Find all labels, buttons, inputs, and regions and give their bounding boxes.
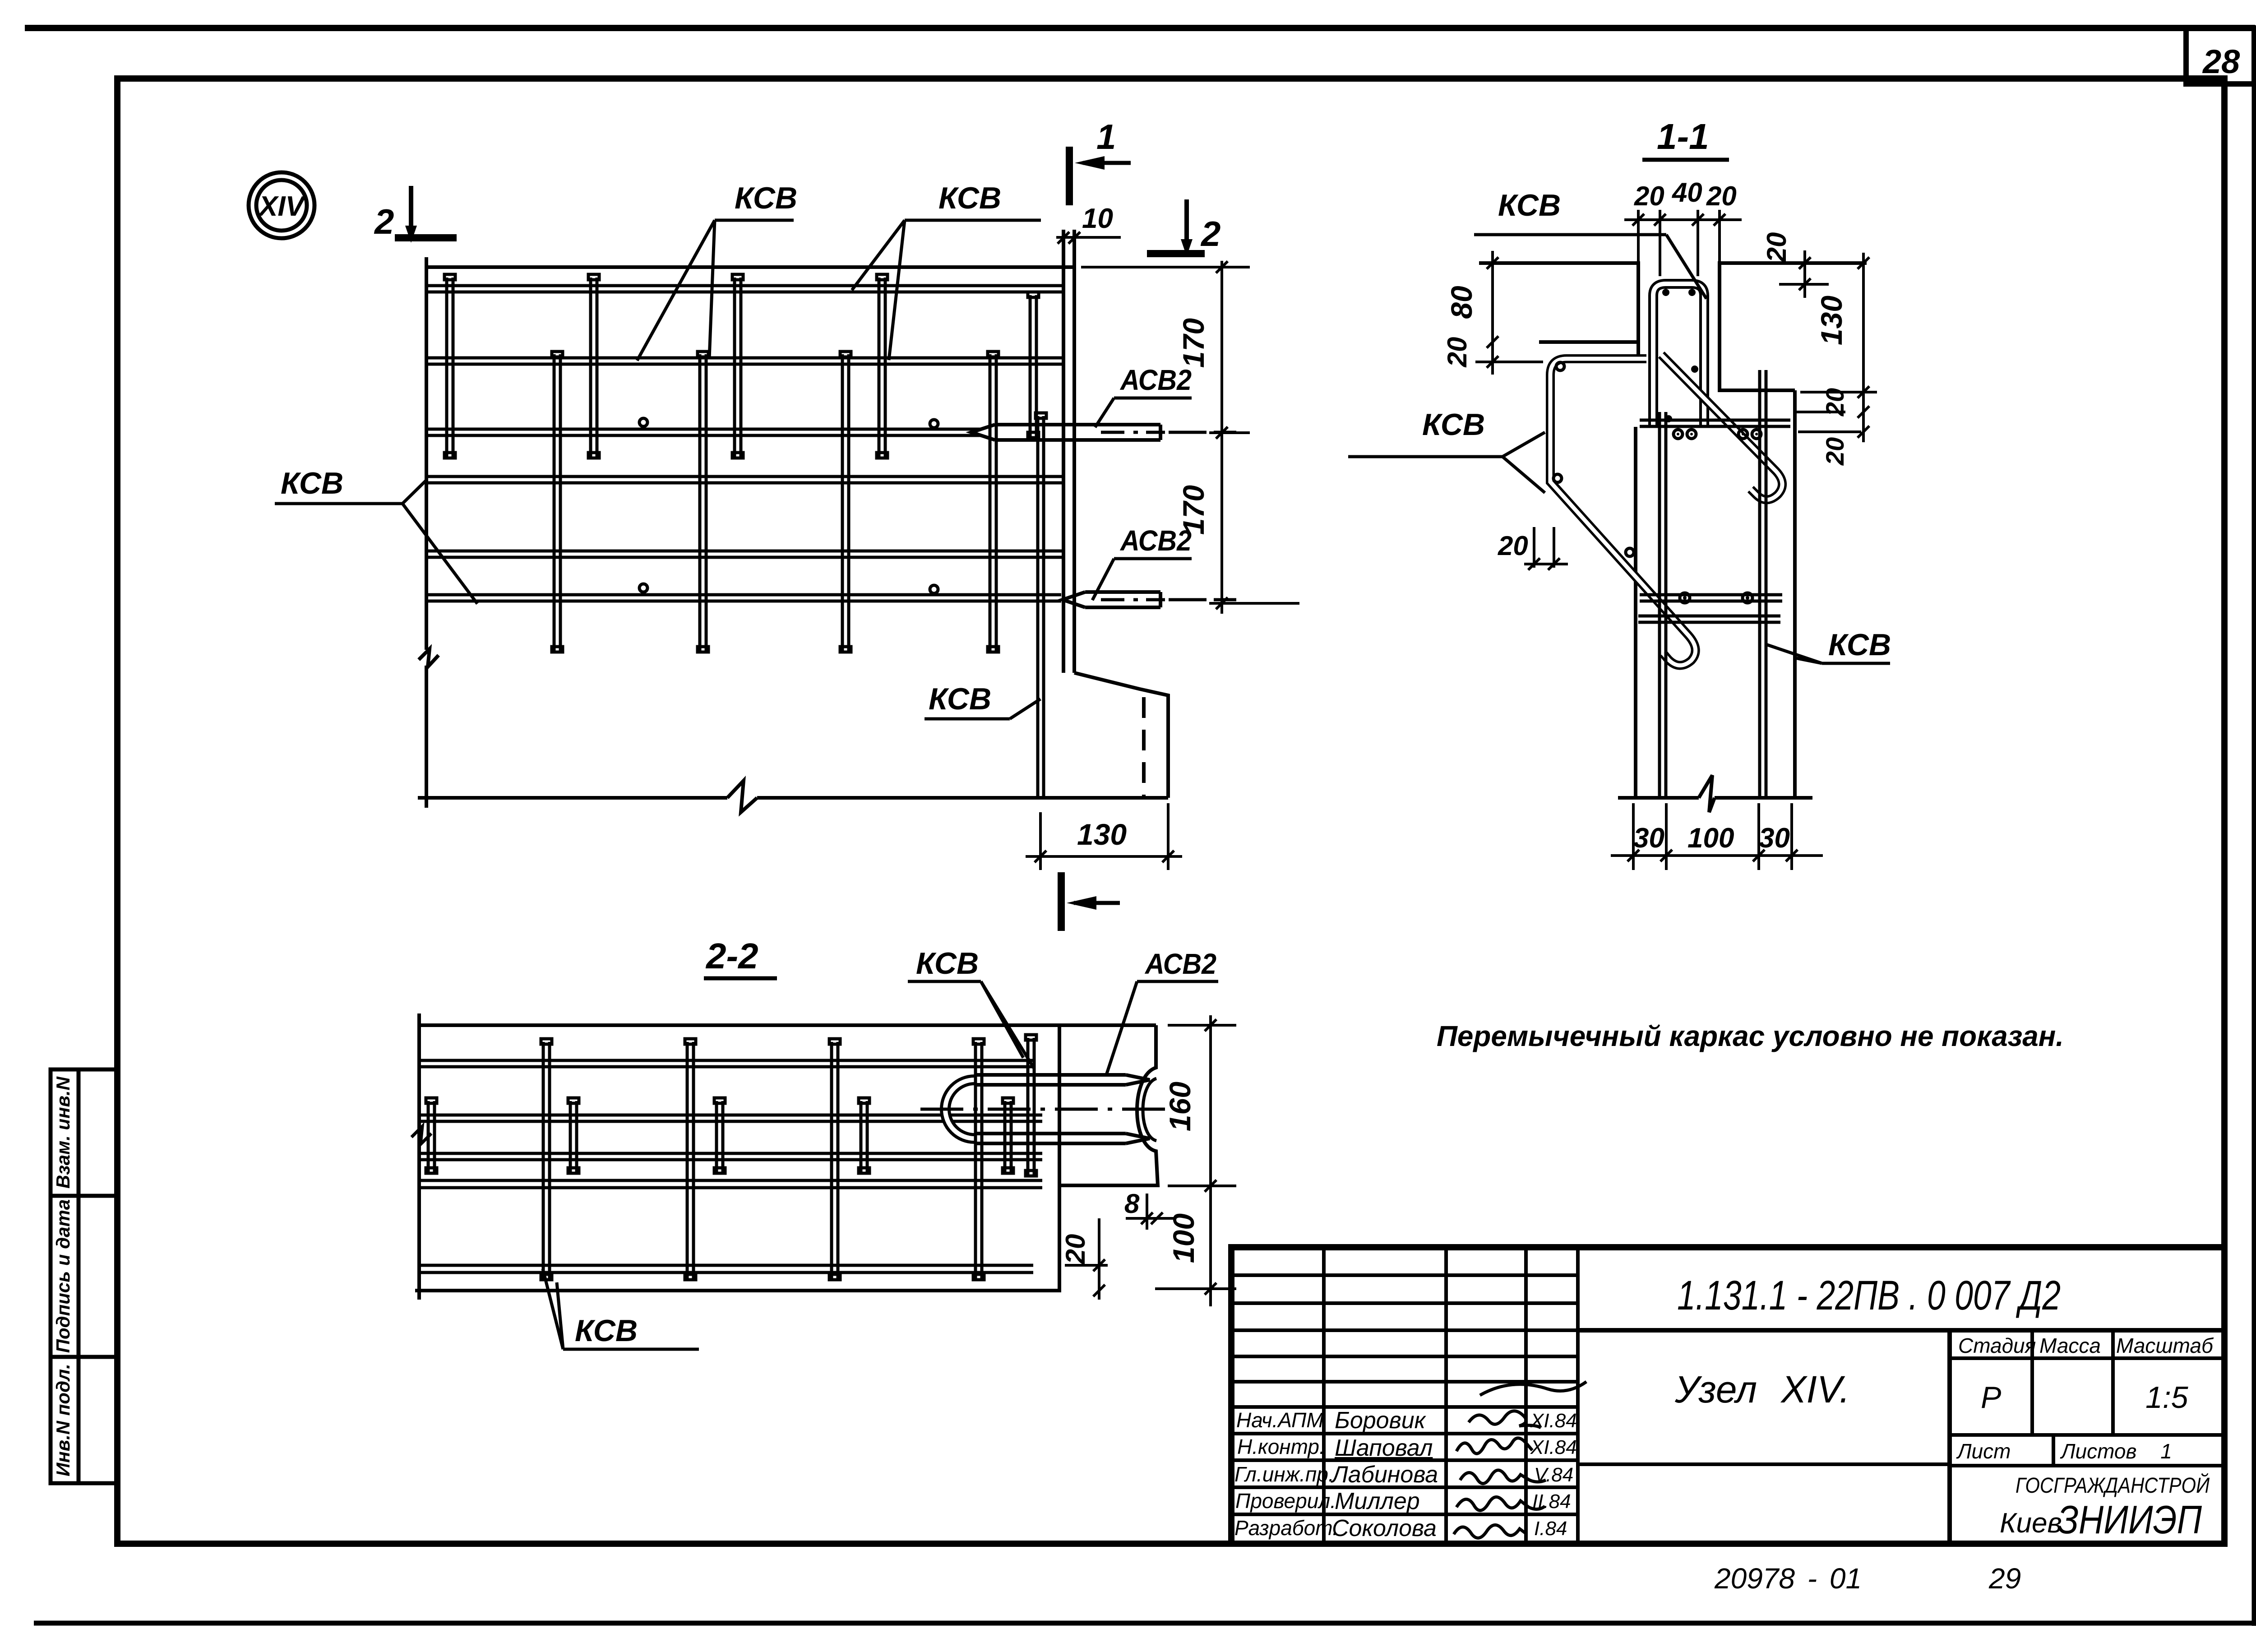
svg-text:Взам. инв.N: Взам. инв.N <box>52 1076 74 1189</box>
svg-text:Стадия: Стадия <box>1958 1334 2036 1357</box>
svg-text:100: 100 <box>1167 1213 1200 1263</box>
svg-text:КСВ: КСВ <box>916 946 979 981</box>
svg-text:XI.84: XI.84 <box>1530 1410 1577 1432</box>
svg-text:1:5: 1:5 <box>2145 1380 2188 1415</box>
svg-text:Киев: Киев <box>2000 1508 2062 1539</box>
svg-text:28: 28 <box>2202 43 2240 80</box>
svg-text:Масса: Масса <box>2039 1334 2101 1357</box>
svg-text:КСВ: КСВ <box>938 181 1001 215</box>
svg-text:30: 30 <box>1633 823 1664 854</box>
svg-text:Лабинова: Лабинова <box>1331 1462 1438 1488</box>
svg-text:V.84: V.84 <box>1534 1464 1573 1486</box>
svg-text:КСВ: КСВ <box>1498 188 1561 222</box>
svg-text:20: 20 <box>1498 531 1528 561</box>
svg-text:ГОСГРАЖДАНСТРОЙ: ГОСГРАЖДАНСТРОЙ <box>2016 1473 2210 1498</box>
svg-text:Листов 1: Листов 1 <box>2060 1439 2172 1463</box>
svg-text:КСВ: КСВ <box>735 181 797 215</box>
svg-text:1: 1 <box>1096 117 1116 157</box>
svg-text:2-2: 2-2 <box>705 936 758 976</box>
svg-text:20: 20 <box>1821 437 1849 466</box>
svg-text:АСВ2: АСВ2 <box>1119 364 1192 396</box>
svg-text:XIV: XIV <box>258 191 306 222</box>
svg-text:170: 170 <box>1177 318 1210 368</box>
svg-text:40: 40 <box>1672 177 1702 208</box>
svg-text:Шаповал: Шаповал <box>1335 1435 1433 1461</box>
svg-text:КСВ: КСВ <box>929 682 991 716</box>
svg-text:130: 130 <box>1077 818 1127 851</box>
svg-text:Боровик: Боровик <box>1335 1407 1427 1434</box>
svg-text:I.84: I.84 <box>1534 1518 1567 1540</box>
svg-text:КСВ: КСВ <box>281 466 343 500</box>
svg-text:160: 160 <box>1163 1082 1197 1131</box>
svg-text:XI.84: XI.84 <box>1530 1436 1577 1458</box>
svg-text:1-1: 1-1 <box>1657 116 1709 157</box>
svg-text:29: 29 <box>1988 1562 2021 1595</box>
svg-text:Соколова: Соколова <box>1332 1515 1437 1541</box>
svg-text:Масштаб: Масштаб <box>2116 1334 2214 1357</box>
svg-text:КСВ: КСВ <box>1422 407 1485 442</box>
svg-text:20: 20 <box>1821 388 1849 416</box>
svg-text:100: 100 <box>1687 823 1734 854</box>
svg-text:80: 80 <box>1445 286 1478 319</box>
svg-text:АСВ2: АСВ2 <box>1144 948 1216 980</box>
svg-text:30: 30 <box>1759 823 1790 854</box>
svg-text:АСВ2: АСВ2 <box>1119 524 1192 557</box>
svg-text:20: 20 <box>1060 1234 1091 1265</box>
svg-text:ЗНИИЭП: ЗНИИЭП <box>2057 1497 2202 1542</box>
svg-text:Н.контр.: Н.контр. <box>1237 1435 1325 1458</box>
svg-text:Инв.N подл.: Инв.N подл. <box>52 1364 74 1476</box>
svg-text:Лист: Лист <box>1956 1439 2011 1463</box>
svg-text:II.84: II.84 <box>1532 1490 1571 1513</box>
svg-text:20: 20 <box>1706 181 1737 211</box>
svg-text:2: 2 <box>1200 214 1220 254</box>
svg-text:2: 2 <box>374 202 394 241</box>
svg-text:10: 10 <box>1082 203 1113 234</box>
svg-text:Проверил.: Проверил. <box>1235 1489 1336 1513</box>
svg-text:20: 20 <box>1442 337 1472 368</box>
svg-text:Перемычечный каркас условно: Перемычечный каркас условно не показан. <box>1437 1020 2064 1052</box>
svg-text:КСВ: КСВ <box>575 1314 638 1348</box>
svg-text:1.131.1 - 22ПВ . 0 007 Д2: 1.131.1 - 22ПВ . 0 007 Д2 <box>1677 1273 2061 1319</box>
svg-text:Нач.АПМ: Нач.АПМ <box>1236 1408 1324 1432</box>
svg-text:130: 130 <box>1815 296 1848 345</box>
svg-text:Узел XIV.: Узел XIV. <box>1674 1368 1850 1411</box>
svg-text:Миллер: Миллер <box>1335 1488 1420 1514</box>
svg-text:КСВ: КСВ <box>1828 628 1891 662</box>
svg-text:Гл.инж.пр.: Гл.инж.пр. <box>1234 1462 1334 1486</box>
svg-text:20978 - 01: 20978 - 01 <box>1714 1562 1862 1595</box>
svg-text:20: 20 <box>1761 232 1792 263</box>
svg-text:8: 8 <box>1124 1189 1140 1219</box>
svg-text:Р: Р <box>1981 1380 2001 1415</box>
svg-text:Разработ.: Разработ. <box>1234 1516 1338 1540</box>
svg-text:Подпись и дата: Подпись и дата <box>52 1199 74 1353</box>
svg-text:20: 20 <box>1634 181 1664 211</box>
